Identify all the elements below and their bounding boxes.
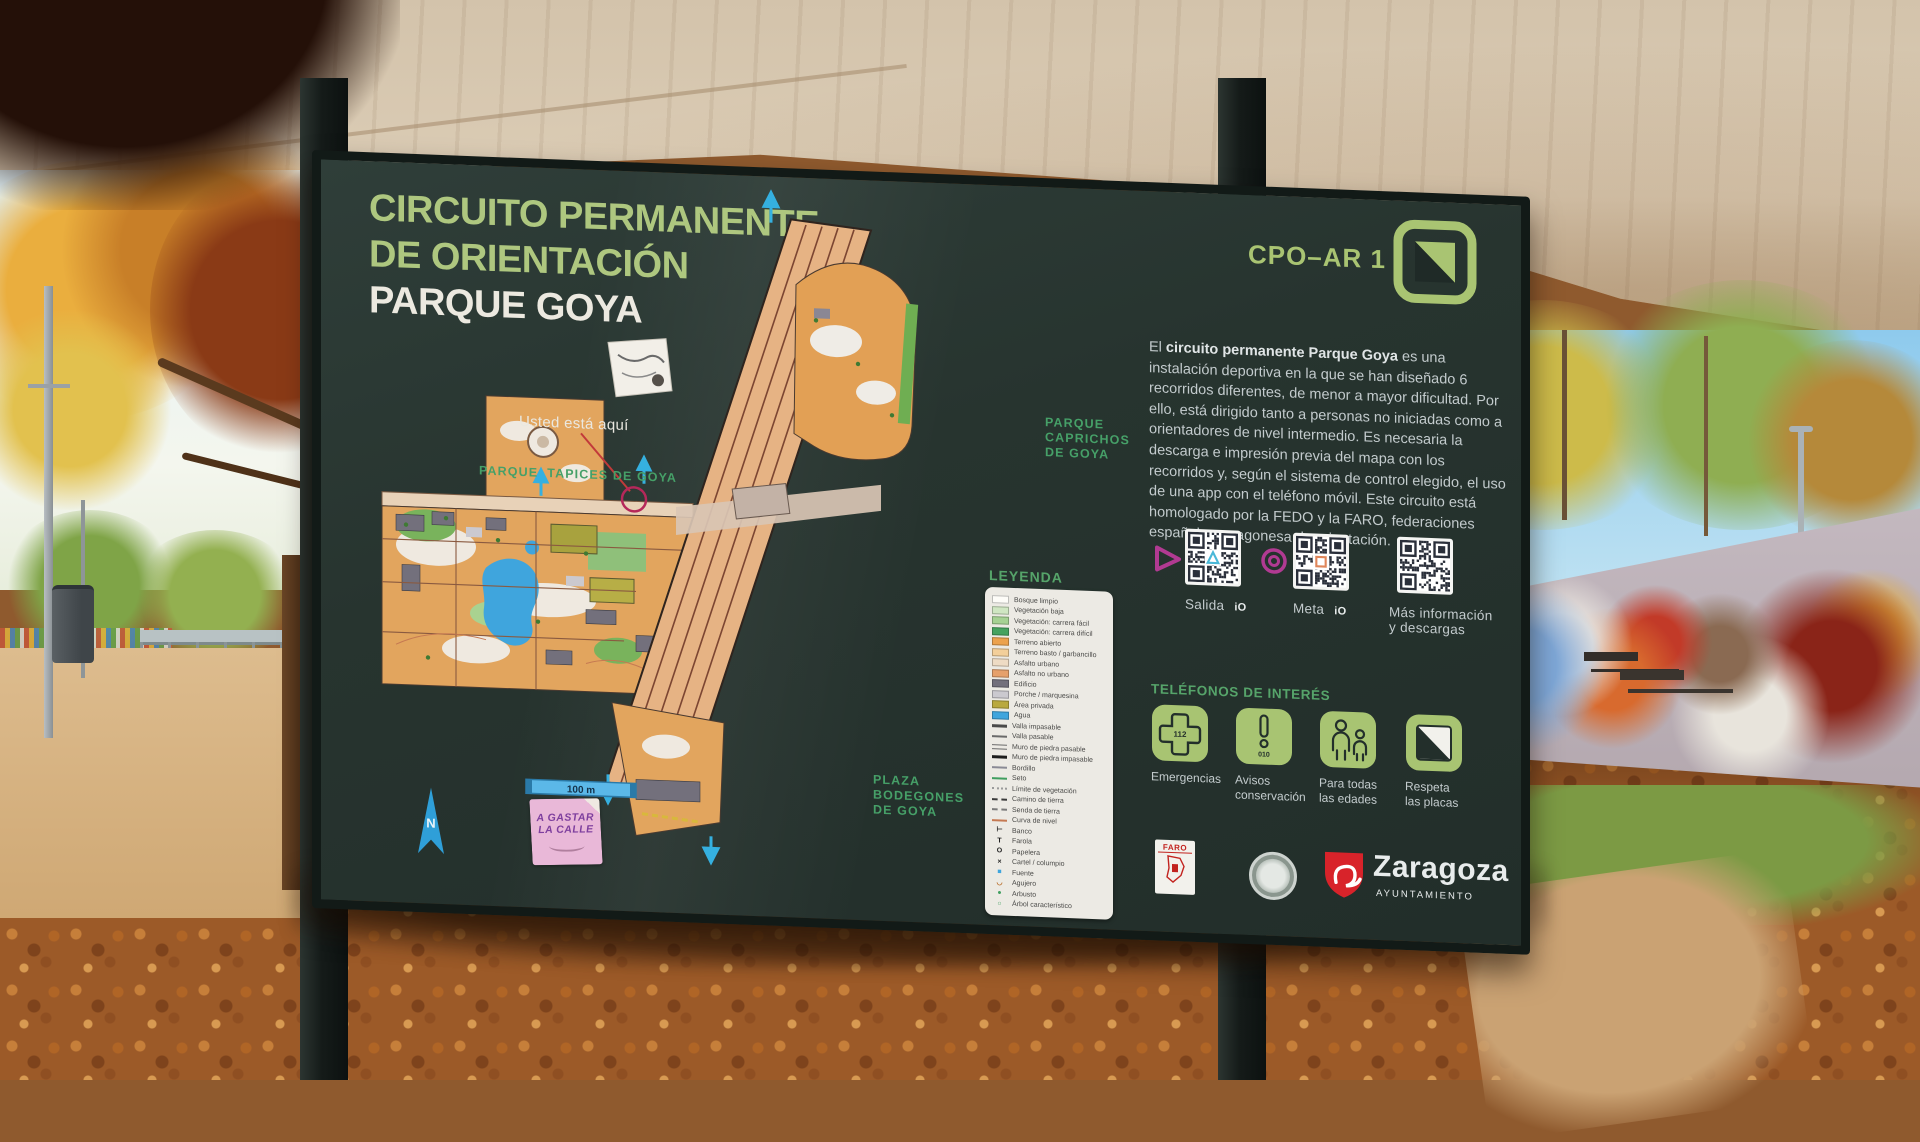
trash-bin bbox=[52, 585, 94, 663]
legend-swatch bbox=[992, 798, 1007, 801]
map-caprichos-park bbox=[794, 261, 916, 462]
svg-text:112: 112 bbox=[1174, 730, 1187, 740]
left-park-scene bbox=[0, 140, 320, 1080]
lamppost-arm bbox=[28, 384, 70, 388]
white-sticker bbox=[608, 336, 672, 398]
legend-label: Asfalto urbano bbox=[1014, 660, 1059, 669]
legend-swatch bbox=[992, 808, 1007, 811]
legend-title: LEYENDA bbox=[989, 567, 1063, 586]
respect-plaques-flag-icon bbox=[1405, 713, 1463, 773]
legend-label: Farola bbox=[1012, 838, 1032, 846]
legend-label: Seto bbox=[1012, 775, 1026, 783]
legend-swatch bbox=[992, 700, 1009, 709]
legend-label: Valla impasable bbox=[1012, 723, 1061, 732]
legend-swatch bbox=[992, 787, 1007, 790]
legend-swatch bbox=[992, 658, 1009, 667]
qr-label-info: Más información y descargas bbox=[1389, 604, 1511, 639]
legend-swatch bbox=[992, 755, 1007, 759]
svg-text:100 m: 100 m bbox=[567, 784, 595, 796]
phone-label-avisos: Avisos conservación bbox=[1235, 772, 1321, 805]
legend-label: Porche / marquesina bbox=[1014, 691, 1079, 700]
legend-label: Bordillo bbox=[1012, 765, 1035, 773]
phone-label-edades: Para todas las edades bbox=[1319, 776, 1405, 809]
start-triangle-icon bbox=[1153, 543, 1183, 574]
legend-swatch: ■ bbox=[992, 868, 1007, 877]
plaza-bodegones-label: PLAZABODEGONESDE GOYA bbox=[873, 773, 964, 822]
legend-swatch bbox=[992, 606, 1009, 615]
phone-label-emergencias: Emergencias bbox=[1151, 769, 1237, 787]
legend-label: Valla pasable bbox=[1012, 733, 1054, 742]
sticker-line1: A GASTAR bbox=[536, 811, 594, 824]
label-line: DE GOYA bbox=[1045, 445, 1109, 461]
emergency-cross-icon: 112 bbox=[1151, 703, 1209, 763]
legend-label: Edificio bbox=[1014, 681, 1037, 689]
legend-label: Papelera bbox=[1012, 849, 1040, 857]
phones-heading: TELÉFONOS DE INTERÉS bbox=[1151, 681, 1330, 703]
legend-label: Asfalto no urbano bbox=[1014, 670, 1069, 679]
legend-swatch bbox=[992, 669, 1009, 678]
legend-swatch: ● bbox=[992, 889, 1007, 898]
qr-center-finish-icon bbox=[1313, 553, 1329, 570]
intro-paragraph: El circuito permanente Parque Goya es un… bbox=[1149, 337, 1507, 557]
legend-label: Bosque limpio bbox=[1014, 597, 1058, 606]
legend-label: Agujero bbox=[1012, 880, 1036, 888]
legend-swatch bbox=[992, 648, 1009, 657]
finish-circles-icon bbox=[1259, 545, 1289, 576]
legend-card: Bosque limpioVegetación bajaVegetación: … bbox=[985, 587, 1113, 920]
legend-label: Terreno abierto bbox=[1014, 639, 1061, 648]
legend-swatch bbox=[992, 777, 1007, 780]
label-line: DE GOYA bbox=[873, 803, 937, 819]
legend-label: Camino de tierra bbox=[1012, 796, 1064, 805]
qr-label-salida: SalidaiO bbox=[1185, 597, 1247, 614]
tree-trunk bbox=[1562, 330, 1567, 520]
all-ages-people-icon bbox=[1319, 710, 1377, 770]
zaragoza-logo-text: Zaragoza bbox=[1373, 850, 1509, 889]
legend-items: Bosque limpioVegetación bajaVegetación: … bbox=[992, 594, 1108, 913]
legend-label: Arbusto bbox=[1012, 891, 1036, 899]
pink-graffiti-sticker: A GASTAR LA CALLE bbox=[529, 798, 602, 865]
qr-label-text: Meta bbox=[1293, 601, 1324, 617]
legend-label: Curva de nivel bbox=[1012, 817, 1057, 826]
legend-label: Fuente bbox=[1012, 870, 1034, 878]
label-line: PARQUE bbox=[1045, 415, 1104, 431]
control-flag-logo bbox=[1393, 219, 1477, 306]
legend-swatch: ○ bbox=[992, 900, 1007, 909]
exclamation-icon: 010 bbox=[1235, 706, 1293, 766]
legend-label: Límite de vegetación bbox=[1012, 786, 1077, 795]
zaragoza-logo-subtext: AYUNTAMIENTO bbox=[1376, 888, 1474, 903]
course-code: CPO–AR 1 bbox=[1226, 238, 1386, 275]
legend-swatch bbox=[992, 690, 1009, 699]
lamppost bbox=[44, 286, 53, 738]
legend-swatch bbox=[992, 744, 1007, 750]
sticker-squiggle bbox=[548, 840, 585, 853]
svg-text:N: N bbox=[426, 815, 435, 830]
legend-swatch: T bbox=[992, 837, 1007, 846]
legend-swatch bbox=[992, 724, 1007, 728]
legend-swatch bbox=[992, 766, 1007, 769]
tree-trunk bbox=[1704, 336, 1708, 536]
park-bench bbox=[1620, 670, 1684, 680]
map-sports-field bbox=[551, 524, 597, 554]
legend-label: Área privada bbox=[1014, 702, 1054, 711]
aragon-outline-icon bbox=[1162, 853, 1188, 886]
orientation-sign-board: CIRCUITO PERMANENTE DE ORIENTACIÓN PARQU… bbox=[312, 150, 1530, 955]
legend-swatch bbox=[992, 735, 1007, 738]
io-logo: iO bbox=[1234, 601, 1246, 613]
map-bridge bbox=[732, 484, 790, 519]
qr-center-start-icon bbox=[1205, 549, 1221, 566]
legend-label: Agua bbox=[1014, 712, 1030, 720]
phone-label-respeta: Respeta las placas bbox=[1405, 779, 1491, 812]
legend-label: Banco bbox=[1012, 828, 1032, 836]
legend-swatch: ◡ bbox=[992, 879, 1007, 888]
legend-swatch bbox=[992, 627, 1009, 636]
legend-swatch: × bbox=[992, 858, 1007, 867]
park-caprichos-label: PARQUECAPRICHOSDE GOYA bbox=[1045, 415, 1130, 463]
legend-swatch: O bbox=[992, 847, 1007, 856]
legend-swatch: ⊢ bbox=[992, 826, 1007, 835]
qr-code-meta bbox=[1293, 533, 1349, 591]
sticker-line2: LA CALLE bbox=[538, 823, 594, 836]
qr-label-meta: MetaiO bbox=[1293, 601, 1346, 618]
intro-rest: es una instalación deportiva en la que s… bbox=[1149, 349, 1506, 550]
legend-swatch bbox=[992, 679, 1009, 688]
legend-swatch bbox=[992, 711, 1009, 720]
qr-code-info bbox=[1397, 537, 1453, 595]
zaragoza-shield-icon bbox=[1321, 848, 1367, 902]
svg-text:010: 010 bbox=[1258, 751, 1270, 758]
club-emblem bbox=[1249, 851, 1297, 901]
legend-label: Senda de tierra bbox=[1012, 807, 1060, 816]
legend-label: Árbol característico bbox=[1012, 901, 1072, 910]
photo-of-orienteering-sign: { "colors":{"accent_green":"#a9c472","he… bbox=[0, 0, 1920, 1080]
legend-swatch bbox=[992, 819, 1007, 822]
legend-label: Cartel / columpio bbox=[1012, 859, 1065, 868]
legend-swatch bbox=[992, 595, 1009, 604]
lamppost bbox=[1798, 430, 1804, 546]
legend-swatch bbox=[992, 616, 1009, 625]
legend-label: Vegetación baja bbox=[1014, 607, 1064, 616]
intro-prefix: El bbox=[1149, 339, 1166, 356]
faro-federation-logo: FARO bbox=[1155, 839, 1195, 895]
label-line: PLAZA bbox=[873, 773, 920, 789]
io-logo: iO bbox=[1334, 605, 1346, 617]
legend-swatch bbox=[992, 637, 1009, 646]
north-arrow: N bbox=[418, 787, 444, 854]
park-bench bbox=[1584, 652, 1638, 661]
qr-label-text: Salida bbox=[1185, 597, 1224, 614]
map-bodegones-block bbox=[612, 703, 724, 839]
qr-code-salida bbox=[1185, 529, 1241, 587]
orienteering-map: 100 m N bbox=[336, 172, 966, 896]
